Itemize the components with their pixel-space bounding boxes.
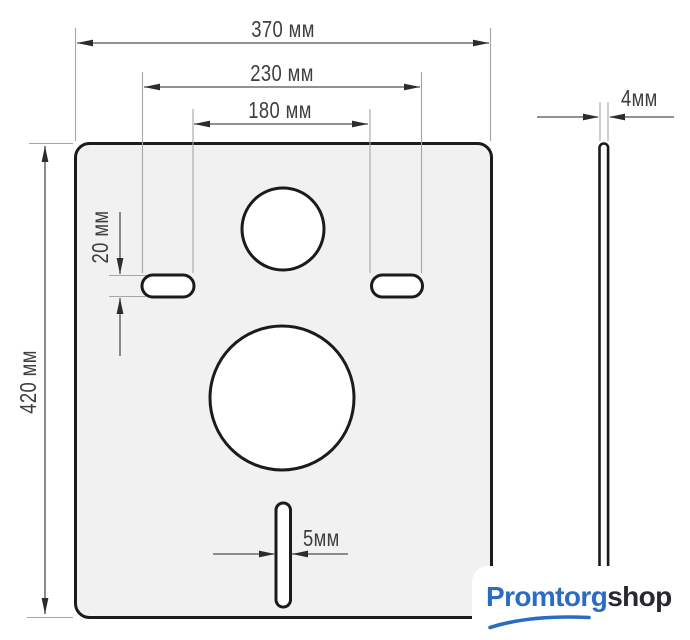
arrow-180-left xyxy=(194,121,210,128)
bottom-slot-hole xyxy=(276,503,291,607)
large-circle-hole xyxy=(210,326,354,470)
arrow-370-left xyxy=(77,40,93,47)
arrow-4-left xyxy=(583,114,599,121)
side-view-strip xyxy=(600,144,609,618)
left-oval-hole xyxy=(142,275,194,297)
brand-logo: Promtorgshop xyxy=(472,566,690,640)
arrow-370-right xyxy=(473,40,489,47)
arrow-4-right xyxy=(609,114,625,121)
arrow-180-right xyxy=(352,121,368,128)
logo-wordmark: Promtorgshop xyxy=(486,581,672,613)
arrow-230-left xyxy=(144,84,160,91)
logo-text-shop: shop xyxy=(607,581,671,612)
logo-text-promtorg: Promtorg xyxy=(486,581,607,612)
right-oval-hole xyxy=(372,275,423,297)
top-circle-hole xyxy=(242,188,324,270)
arrow-420-bottom xyxy=(42,598,49,614)
technical-drawing xyxy=(0,0,690,640)
logo-swoosh-icon xyxy=(487,613,593,631)
arrow-230-right xyxy=(404,84,420,91)
arrow-420-top xyxy=(42,146,49,162)
swoosh-curve xyxy=(490,617,589,628)
dimension-diagram: 370 мм 230 мм 180 мм 420 мм 20 мм 5мм 4м… xyxy=(0,0,690,640)
